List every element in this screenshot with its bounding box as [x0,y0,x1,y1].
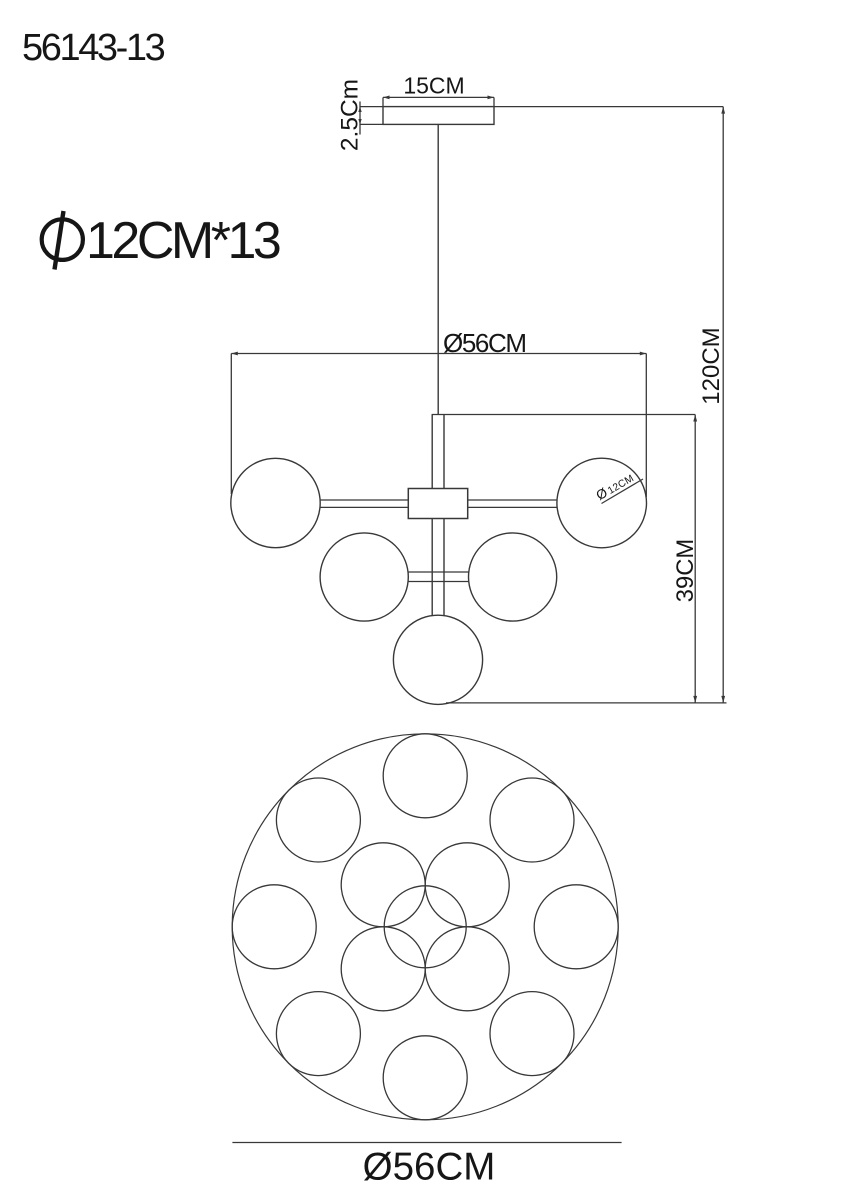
svg-text:2.5Cm: 2.5Cm [337,79,364,151]
svg-text:15CM: 15CM [403,73,464,99]
svg-text:39CM: 39CM [672,539,699,602]
svg-text:120CM: 120CM [698,327,725,404]
svg-text:Ø56CM: Ø56CM [363,1146,496,1189]
svg-text:Ø56CM: Ø56CM [443,328,526,358]
svg-text:56143-13: 56143-13 [22,27,165,69]
svg-text:12CM*13: 12CM*13 [86,212,280,270]
